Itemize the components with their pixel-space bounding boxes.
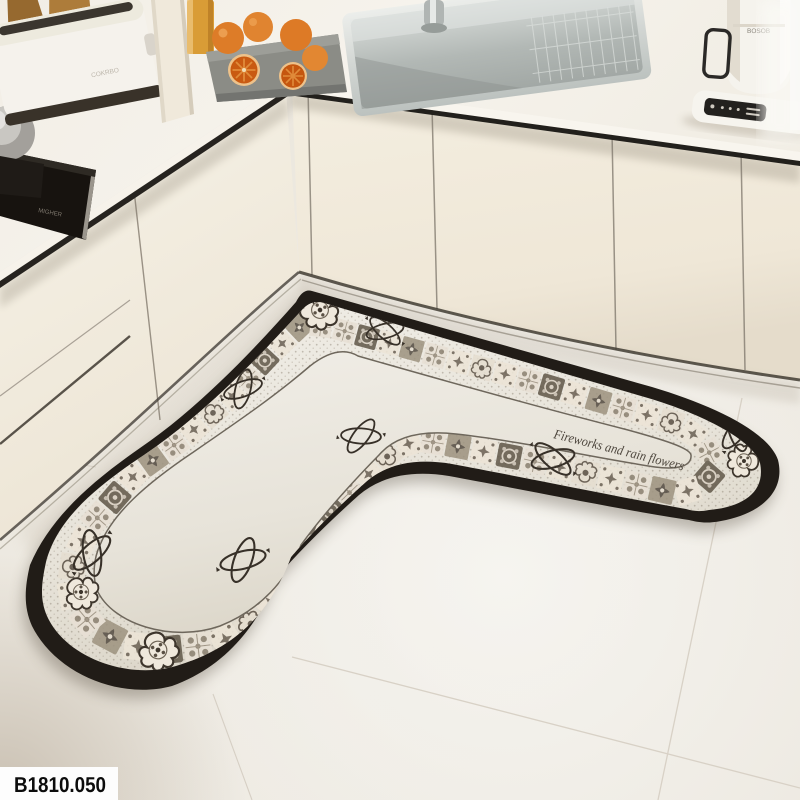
svg-text:B1810.050: B1810.050 — [14, 773, 106, 797]
